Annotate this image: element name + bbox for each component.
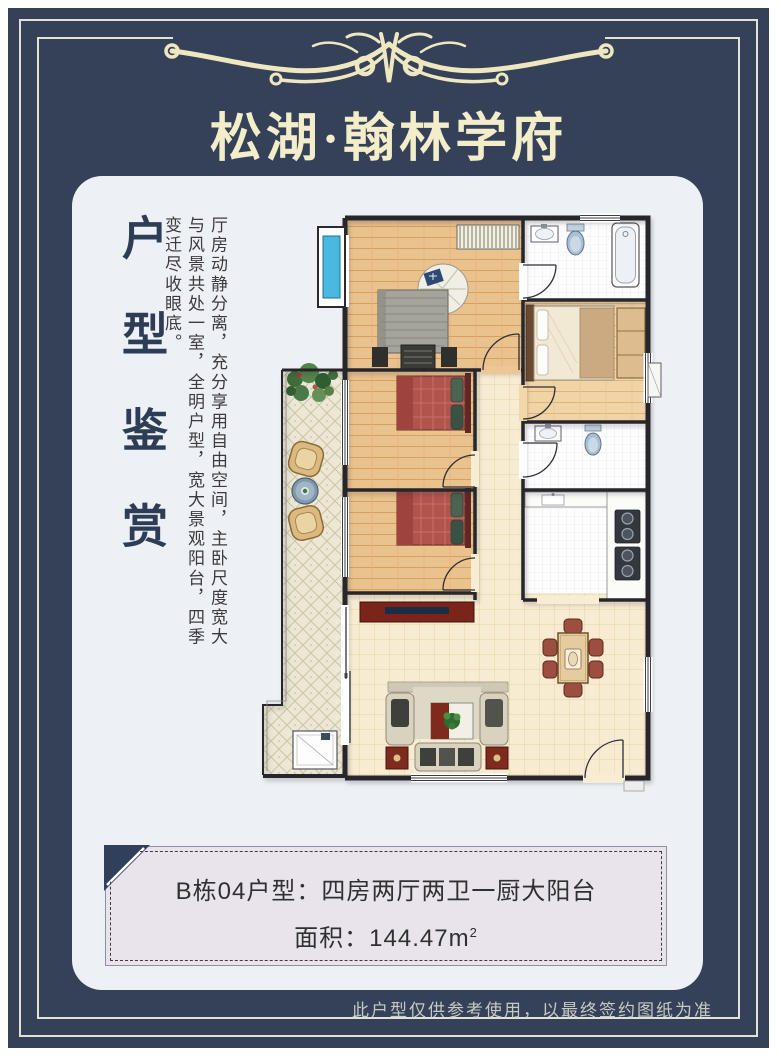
wardrobe [457, 225, 519, 249]
pillow [451, 493, 463, 517]
end-table-left [386, 747, 408, 769]
blanket [580, 308, 614, 378]
speaker-left [372, 347, 388, 367]
entry-step [624, 781, 644, 791]
kitchen-sink [542, 495, 564, 505]
poster-root: 松湖·翰林学府 户型鉴赏 厅房动静分离，充分享用自由空间，主卧尺度宽大与风景共处… [0, 0, 779, 1060]
headboard [526, 305, 534, 381]
corner-fold-icon [104, 845, 150, 891]
headboard [465, 488, 471, 548]
washing-machine [293, 731, 337, 769]
unit-area-text: 面积：144.47m2 [106, 918, 666, 953]
unit-info-panel: B栋04户型：四房两厅两卫一厨大阳台 面积：144.47m2 [105, 846, 667, 966]
pillow [537, 345, 548, 375]
coffee-table [431, 703, 473, 739]
project-title: 松湖·翰林学府 [8, 96, 769, 171]
content-card: 户型鉴赏 厅房动静分离，充分享用自由空间，主卧尺度宽大与风景共处一室，全明户型，… [72, 176, 703, 990]
window-bedroom-2 [341, 380, 349, 465]
floorplan-drawing [255, 205, 665, 800]
headboard [465, 373, 471, 433]
dining-chair [564, 683, 582, 697]
pillow [451, 520, 463, 544]
counter-top [525, 492, 609, 507]
area-label: 面积：144.47m [294, 925, 469, 952]
dining-chair [543, 639, 557, 656]
corridor-floor [475, 370, 523, 600]
bedroom-right-furniture [526, 305, 645, 381]
pillow [451, 378, 463, 402]
description-vertical: 厅房动静分离，充分享用自由空间，主卧尺度宽大与风景共处一室，全明户型，宽大景观阳… [160, 216, 229, 652]
toilet [567, 224, 584, 255]
pillow [537, 310, 548, 340]
area-superscript: 2 [470, 925, 478, 940]
end-table-right [486, 747, 508, 769]
pillow [451, 405, 463, 429]
window-living [411, 774, 507, 783]
window-bedroom-3 [341, 497, 349, 577]
tv-cabinet [360, 602, 474, 622]
bathtub [612, 223, 639, 287]
flourish-ornament-icon [159, 28, 619, 90]
bedroom-2-furniture [397, 373, 471, 433]
tv [385, 607, 449, 614]
sink [535, 424, 561, 441]
dining-chair [589, 661, 603, 678]
foot-bench [401, 345, 435, 369]
counter-right [607, 492, 648, 600]
toilet [585, 425, 601, 455]
bedroom-3-furniture [397, 488, 471, 548]
dining-chair [564, 619, 582, 633]
window-dining [644, 657, 653, 712]
ac-ledge [648, 363, 661, 397]
patio-table [292, 478, 318, 504]
master-bed [378, 290, 448, 353]
dresser [617, 308, 645, 378]
unit-type-text: B栋04户型：四房两厅两卫一厨大阳台 [106, 871, 666, 906]
dining-chair [543, 661, 557, 678]
sink [531, 224, 558, 242]
sliding-door [341, 605, 350, 745]
navy-background: 松湖·翰林学府 户型鉴赏 厅房动静分离，充分享用自由空间，主卧尺度宽大与风景共处… [8, 8, 769, 1048]
dining-chair [589, 639, 603, 656]
bay-window [318, 227, 345, 307]
sofa-set [386, 682, 508, 771]
disclaimer-text: 此户型仅供参考使用，以最终签约图纸为准 [352, 996, 713, 1021]
window-bath1 [580, 214, 620, 223]
main-sofa [415, 743, 481, 771]
speaker-right [441, 347, 457, 367]
